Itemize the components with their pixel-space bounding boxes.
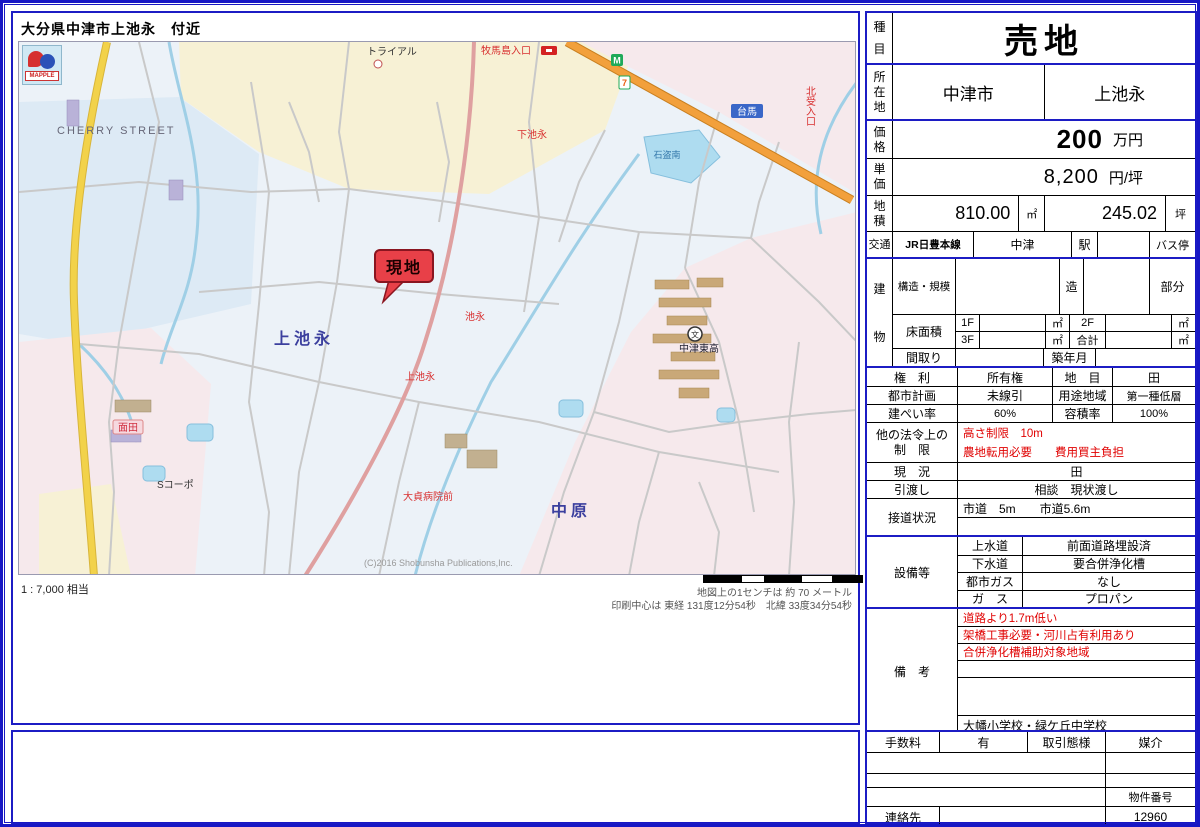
floor-3f-label: 3F bbox=[955, 332, 979, 348]
map-copyright: (C)2016 Shobunsha Publications,Inc. bbox=[364, 558, 513, 568]
section-legal: 権 利 所有権 地 目 田 都市計画 未線引 用途地域 第一種低層 建ぺい率 6… bbox=[865, 366, 1197, 537]
label-kami-ikenaga-bus: 上池永 bbox=[405, 370, 435, 383]
transport-station: 中津 bbox=[973, 232, 1071, 257]
floor-2f-value bbox=[1105, 315, 1171, 331]
location-label: 所在地 bbox=[867, 65, 893, 119]
site-marker-label: 現地 bbox=[386, 258, 422, 277]
floor-1f-value bbox=[979, 315, 1045, 331]
floor-total-value bbox=[1105, 332, 1171, 348]
current-state-label: 現 況 bbox=[867, 463, 957, 480]
road-access-label: 接道状況 bbox=[867, 499, 957, 535]
location-city: 中津市 bbox=[893, 65, 1044, 119]
city-plan-value: 未線引 bbox=[957, 387, 1052, 404]
property-number-label: 物件番号 bbox=[1105, 788, 1195, 806]
label-daiba: 台馬 bbox=[737, 105, 757, 118]
label-trial: トライアル bbox=[367, 46, 417, 58]
far-value: 100% bbox=[1112, 405, 1195, 422]
zoning-value: 第一種低層 bbox=[1112, 387, 1195, 404]
remarks-red-line: 道路より1.7m低い bbox=[958, 609, 1195, 626]
footer-blank-cell bbox=[867, 753, 1105, 773]
label-s-corp: Sコーポ bbox=[157, 479, 194, 491]
transport-blank bbox=[1097, 232, 1149, 257]
facilities-label: 設備等 bbox=[867, 537, 957, 607]
transport-label: 交通 bbox=[867, 232, 893, 257]
transport-station-suffix: 駅 bbox=[1071, 232, 1097, 257]
land-category-label: 地 目 bbox=[1052, 368, 1112, 386]
current-state-value: 田 bbox=[957, 463, 1195, 480]
footer-blank-cell bbox=[867, 774, 1105, 787]
coverage-value: 60% bbox=[957, 405, 1052, 422]
building-label: 建物 bbox=[867, 259, 893, 366]
fee-value: 有 bbox=[939, 732, 1027, 752]
built-date-value bbox=[1095, 349, 1195, 366]
deal-type-value: 媒介 bbox=[1105, 732, 1195, 752]
scale-ratio-text: 1 : 7,000 相当 bbox=[21, 581, 89, 597]
price-value: 200 bbox=[1057, 124, 1103, 155]
mapple-logo: MAPPLE bbox=[22, 45, 62, 85]
svg-text:文: 文 bbox=[691, 330, 699, 340]
mapple-logo-text: MAPPLE bbox=[25, 71, 59, 81]
property-flyer: 大分県中津市上池永 付近 MAPPLE bbox=[0, 0, 1200, 827]
label-byoin-bus: 大貞病院前 bbox=[403, 490, 453, 503]
zoning-label: 用途地域 bbox=[1052, 387, 1112, 404]
label-kita-iriguchi: 北受入口 bbox=[804, 86, 816, 126]
unit-price-unit: 円/坪 bbox=[1109, 167, 1143, 188]
shop-dot-icon bbox=[374, 60, 382, 68]
floor-total-unit: ㎡ bbox=[1171, 332, 1195, 348]
label-makijima-bus: 牧馬島入口 bbox=[481, 44, 531, 57]
floor-area-label: 床面積 bbox=[893, 315, 955, 348]
property-detail-table: 種目 売地 所在地 中津市 上池永 価格 200 万円 単価 bbox=[865, 11, 1197, 736]
section-location: 所在地 中津市 上池永 bbox=[865, 63, 1197, 121]
road-access-value: 市道 5m 市道5.6m bbox=[958, 499, 1195, 517]
facility-value: なし bbox=[1022, 573, 1195, 590]
remarks-label: 備 考 bbox=[867, 609, 957, 734]
signal-sign-inner bbox=[546, 49, 552, 52]
structure-suffix: 造 bbox=[1059, 259, 1083, 314]
label-school: 中津東高 bbox=[679, 342, 719, 355]
coverage-label: 建ぺい率 bbox=[867, 405, 957, 422]
transport-bus-stop: バス停 bbox=[1149, 232, 1195, 257]
map-canvas: M 7 文 CHERRY STREET トライアル 牧馬島入口 下池永 bbox=[19, 42, 856, 575]
structure-part-label: 部分 bbox=[1149, 259, 1195, 314]
label-nakahara-area: 中原 bbox=[551, 501, 591, 520]
facility-value: 前面道路埋設済 bbox=[1022, 537, 1195, 555]
transport-line: JR日豊本線 bbox=[893, 232, 973, 257]
footer-blank-cell bbox=[1105, 774, 1195, 787]
city-plan-label: 都市計画 bbox=[867, 387, 957, 404]
land-area-tsubo-unit: 坪 bbox=[1165, 196, 1195, 231]
floor-total-label: 合計 bbox=[1069, 332, 1105, 348]
price-label: 価格 bbox=[867, 121, 893, 158]
contact-value bbox=[939, 807, 1105, 827]
built-date-label: 築年月 bbox=[1043, 349, 1095, 366]
contact-label: 連絡先 bbox=[867, 807, 939, 827]
svg-text:7: 7 bbox=[622, 78, 627, 88]
remarks-red-line: 合併浄化槽補助対象地域 bbox=[958, 643, 1195, 660]
restrictions-label-line1: 他の法令上の bbox=[876, 428, 948, 443]
floor-3f-value bbox=[979, 332, 1045, 348]
handover-label: 引渡し bbox=[867, 481, 957, 498]
map-notes: 地図上の1センチは 約 70 メートル 印刷中心は 東経 131度12分54秒 … bbox=[611, 587, 852, 613]
price-unit: 万円 bbox=[1113, 129, 1143, 150]
scale-bar bbox=[703, 575, 863, 583]
layout-label: 間取り bbox=[893, 349, 955, 366]
rights-label: 権 利 bbox=[867, 368, 957, 386]
structure-blank bbox=[955, 259, 1059, 314]
category-value: 売地 bbox=[893, 13, 1195, 63]
floor-1f-label: 1F bbox=[955, 315, 979, 331]
structure-label: 構造・規模 bbox=[893, 259, 955, 314]
restrictions-label-line2: 制 限 bbox=[894, 443, 930, 458]
layout-value bbox=[955, 349, 1043, 366]
land-area-tsubo: 245.02 bbox=[1044, 196, 1165, 231]
deal-type-label: 取引態様 bbox=[1027, 732, 1105, 752]
section-building: 建物 構造・規模 造 部分 床面積 1F bbox=[865, 257, 1197, 368]
remarks-blank-row bbox=[958, 660, 1195, 677]
footer-blank-cell bbox=[867, 788, 1105, 806]
scale-note: 地図上の1センチは 約 70 メートル bbox=[611, 587, 852, 600]
far-label: 容積率 bbox=[1052, 405, 1112, 422]
label-shimo-ikenaga-bus: 下池永 bbox=[517, 128, 547, 141]
facility-name: 上水道 bbox=[957, 537, 1022, 555]
rights-value: 所有権 bbox=[957, 368, 1052, 386]
property-number-value: 12960 bbox=[1105, 807, 1195, 827]
land-area-label: 地積 bbox=[867, 196, 893, 231]
map: MAPPLE bbox=[18, 41, 856, 575]
structure-blank2 bbox=[1083, 259, 1149, 314]
bottom-left-empty-box bbox=[11, 730, 860, 825]
facility-name: ガ ス bbox=[957, 591, 1022, 608]
fee-label: 手数料 bbox=[867, 732, 939, 752]
center-coordinates-note: 印刷中心は 東経 131度12分54秒 北緯 33度34分54秒 bbox=[611, 600, 852, 613]
map-title: 大分県中津市上池永 付近 bbox=[21, 19, 201, 39]
land-category-value: 田 bbox=[1112, 368, 1195, 386]
label-cherry-street: CHERRY STREET bbox=[57, 125, 176, 137]
remarks-red-line: 架橋工事必要・河川占有利用あり bbox=[958, 626, 1195, 643]
facility-value: 要合併浄化槽 bbox=[1022, 556, 1195, 573]
floor-2f-label: 2F bbox=[1069, 315, 1105, 331]
facility-value: プロパン bbox=[1022, 591, 1195, 608]
section-facilities: 設備等 上水道 前面道路埋設済 下水道 要合併浄化槽 都市ガス なし bbox=[865, 535, 1197, 609]
remarks-blank-row bbox=[958, 677, 1195, 715]
floor-2f-unit: ㎡ bbox=[1171, 315, 1195, 331]
section-category: 種目 売地 bbox=[865, 11, 1197, 65]
land-area-sqm-unit: ㎡ bbox=[1018, 196, 1044, 231]
label-pond: 石盗南 bbox=[653, 149, 680, 160]
restriction-line1: 高さ制限 10m bbox=[963, 425, 1043, 441]
label-kami-ikenaga-area: 上池永 bbox=[274, 329, 334, 348]
facility-name: 下水道 bbox=[957, 556, 1022, 573]
mapple-logo-blue-blob-icon bbox=[40, 54, 55, 69]
label-ikenaga-bus: 池永 bbox=[465, 310, 485, 323]
category-label: 種目 bbox=[867, 13, 893, 63]
map-panel: 大分県中津市上池永 付近 MAPPLE bbox=[11, 11, 860, 725]
footer-blank-cell bbox=[1105, 753, 1195, 773]
land-area-sqm: 810.00 bbox=[893, 196, 1018, 231]
restriction-line2: 農地転用必要 費用買主負担 bbox=[963, 444, 1124, 460]
section-remarks: 備 考 道路より1.7m低い 架橋工事必要・河川占有利用あり 合併浄化槽補助対象… bbox=[865, 607, 1197, 736]
footer-table: 手数料 有 取引態様 媒介 物件番号 連絡先 12960 bbox=[865, 730, 1197, 825]
section-price: 価格 200 万円 単価 8,200 円/坪 地積 810.00 ㎡ 245.0… bbox=[865, 119, 1197, 259]
facility-name: 都市ガス bbox=[957, 573, 1022, 590]
road-access-blank bbox=[958, 517, 1195, 535]
svg-text:M: M bbox=[613, 56, 621, 66]
unit-price-value: 8,200 bbox=[1044, 166, 1099, 189]
unit-price-label: 単価 bbox=[867, 159, 893, 195]
floor-3f-unit: ㎡ bbox=[1045, 332, 1069, 348]
handover-value: 相談 現状渡し bbox=[957, 481, 1195, 498]
location-district: 上池永 bbox=[1044, 65, 1196, 119]
label-menda-bus: 面田 bbox=[118, 423, 138, 434]
floor-1f-unit: ㎡ bbox=[1045, 315, 1069, 331]
